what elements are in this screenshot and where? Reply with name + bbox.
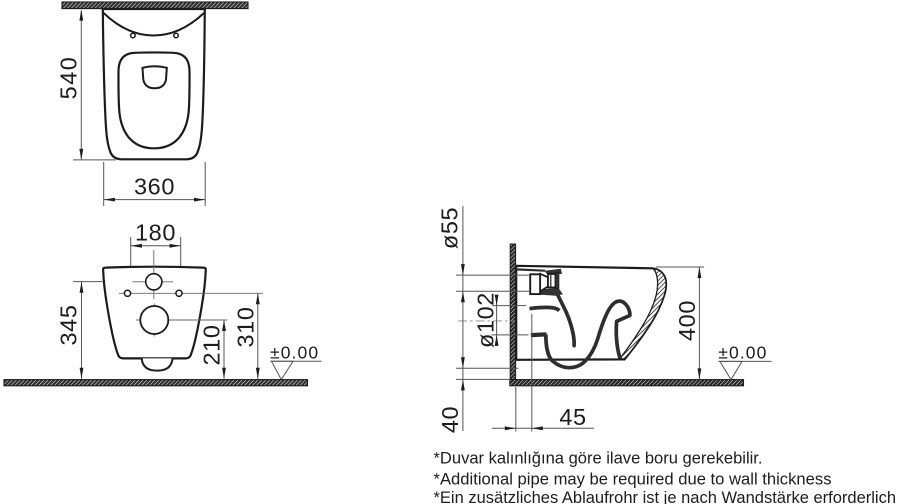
svg-text:400: 400: [674, 300, 700, 341]
svg-text:345: 345: [56, 304, 82, 345]
svg-text:ø55: ø55: [437, 207, 463, 249]
svg-text:360: 360: [134, 174, 175, 200]
svg-text:540: 540: [55, 56, 81, 100]
svg-text:210: 210: [199, 324, 225, 365]
svg-text:45: 45: [559, 404, 586, 430]
svg-text:±0.00: ±0.00: [718, 343, 767, 363]
svg-text:180: 180: [135, 220, 176, 246]
svg-text:±0.00: ±0.00: [270, 343, 319, 363]
svg-text:ø102: ø102: [473, 292, 499, 348]
svg-text:*Ein zusätzliches Ablaufrohr i: *Ein zusätzliches Ablaufrohr ist je nach…: [434, 488, 897, 504]
svg-text:*Additional pipe may be requir: *Additional pipe may be required due to …: [434, 469, 832, 488]
svg-text:40: 40: [437, 406, 463, 433]
svg-text:*Duvar kalınlığına göre ilave: *Duvar kalınlığına göre ilave boru gerek…: [434, 449, 763, 468]
svg-text:310: 310: [232, 306, 258, 347]
